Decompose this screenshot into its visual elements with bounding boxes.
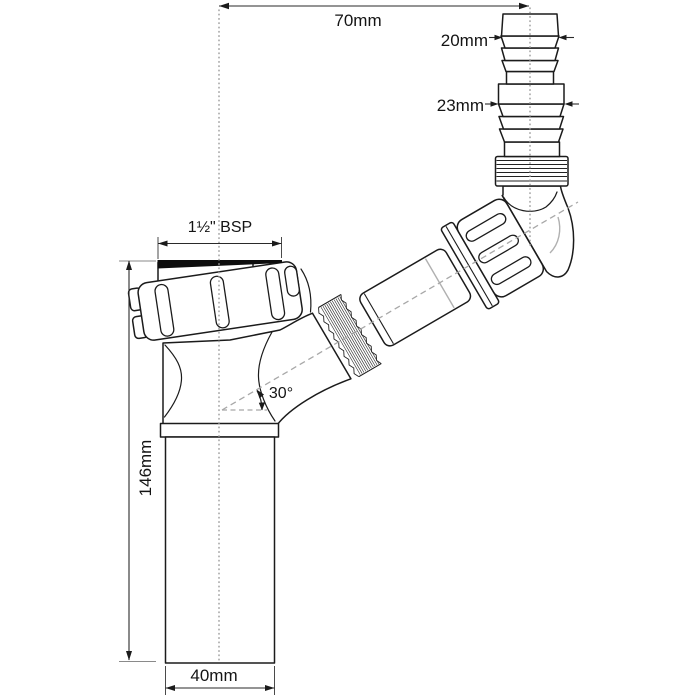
arrow-right-icon	[265, 685, 275, 691]
arrow-left-icon	[559, 35, 567, 41]
arrow-down-icon	[126, 651, 132, 661]
arrow-left-icon	[565, 101, 573, 107]
barb-ring	[499, 117, 564, 130]
dim-label-angle: 30°	[269, 385, 293, 402]
dim-label-70mm: 70mm	[334, 11, 381, 30]
pipe-fitting-diagram: 70mm 20mm 23mm 1½" BSP 30°	[0, 0, 700, 700]
dim-bsp: 1½" BSP	[158, 219, 282, 259]
arrow-left-icon	[158, 241, 168, 247]
dim-70mm: 70mm	[219, 3, 529, 30]
step-23mm	[499, 84, 565, 104]
dim-label-bsp: 1½" BSP	[188, 219, 252, 236]
technical-drawing-canvas: 70mm 20mm 23mm 1½" BSP 30°	[0, 0, 700, 700]
arrow-up-icon	[126, 261, 132, 271]
barb-ring	[502, 48, 559, 61]
barb-ring	[500, 129, 564, 142]
hose-connector	[496, 14, 569, 186]
arrow-left-icon	[166, 685, 176, 691]
dim-40mm: 40mm	[166, 666, 275, 695]
arrow-right-icon	[272, 241, 282, 247]
dim-label-40mm: 40mm	[190, 666, 237, 685]
dim-label-20mm: 20mm	[441, 31, 488, 50]
outlet-tube	[166, 437, 275, 663]
barb-ring	[502, 61, 558, 72]
dim-label-146mm: 146mm	[136, 440, 155, 497]
connector-neck-lower	[505, 142, 560, 157]
barb-ring	[499, 104, 565, 117]
body-shoulder	[161, 424, 279, 438]
arrow-right-icon	[491, 101, 499, 107]
arrow-right-icon	[519, 3, 529, 9]
arrow-left-icon	[219, 3, 229, 9]
body-fillet-branch	[301, 269, 311, 312]
dim-label-23mm: 23mm	[437, 96, 484, 115]
